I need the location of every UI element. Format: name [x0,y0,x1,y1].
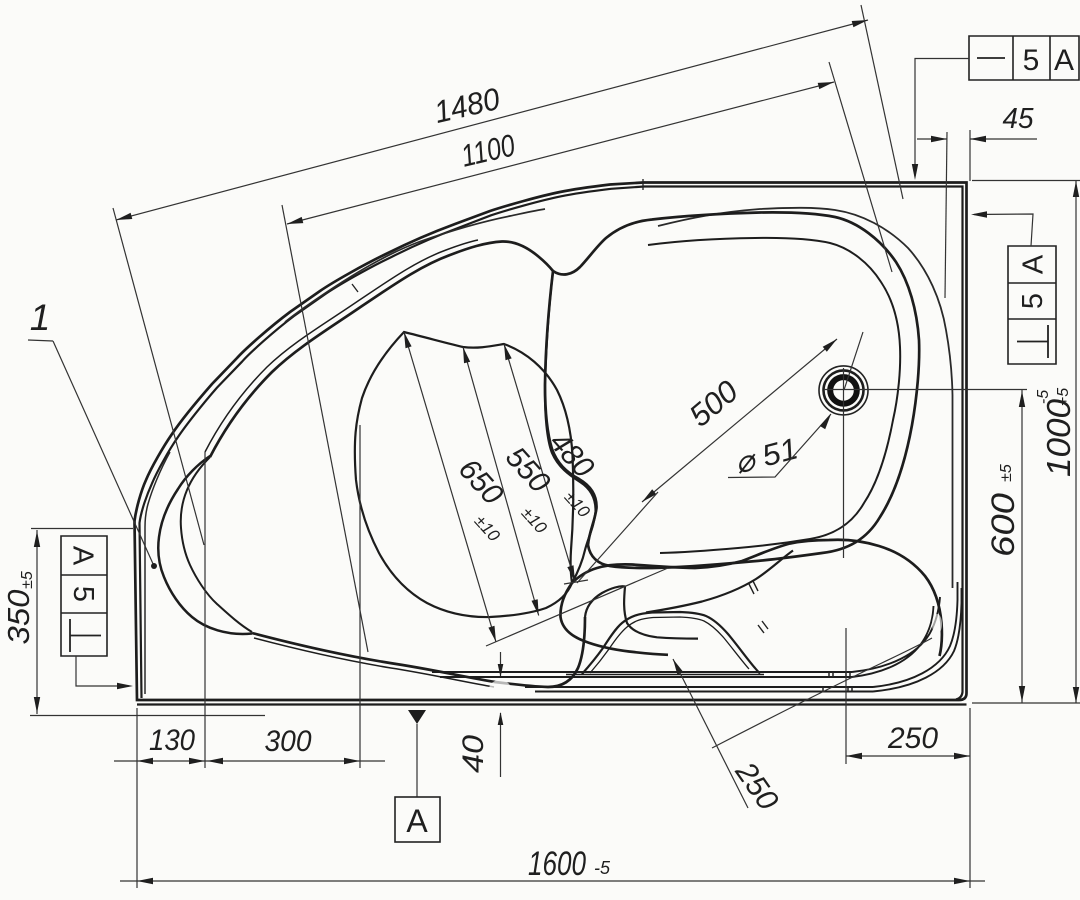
svg-text:-5: -5 [1035,390,1052,404]
svg-text:A: A [1018,254,1050,274]
svg-text:350: 350 [1,590,36,645]
svg-text:A: A [406,803,428,839]
svg-text:A: A [1054,44,1074,77]
svg-text:-5: -5 [594,858,611,878]
svg-text:5: 5 [67,586,99,602]
svg-text:A: A [67,546,99,566]
svg-text:±5: ±5 [19,571,36,589]
svg-text:45: 45 [1003,103,1035,135]
svg-text:+5: +5 [1055,388,1072,406]
svg-text:250: 250 [887,722,938,755]
svg-text:5: 5 [1017,293,1049,309]
svg-text:130: 130 [149,724,195,757]
svg-text:40: 40 [457,735,490,773]
svg-text:1: 1 [30,297,51,338]
svg-text:600: 600 [985,493,1021,557]
svg-text:±5: ±5 [998,464,1015,482]
svg-text:300: 300 [265,725,312,758]
svg-text:5: 5 [1023,44,1040,77]
svg-text:1600: 1600 [528,845,586,883]
svg-text:1000: 1000 [1040,398,1077,477]
